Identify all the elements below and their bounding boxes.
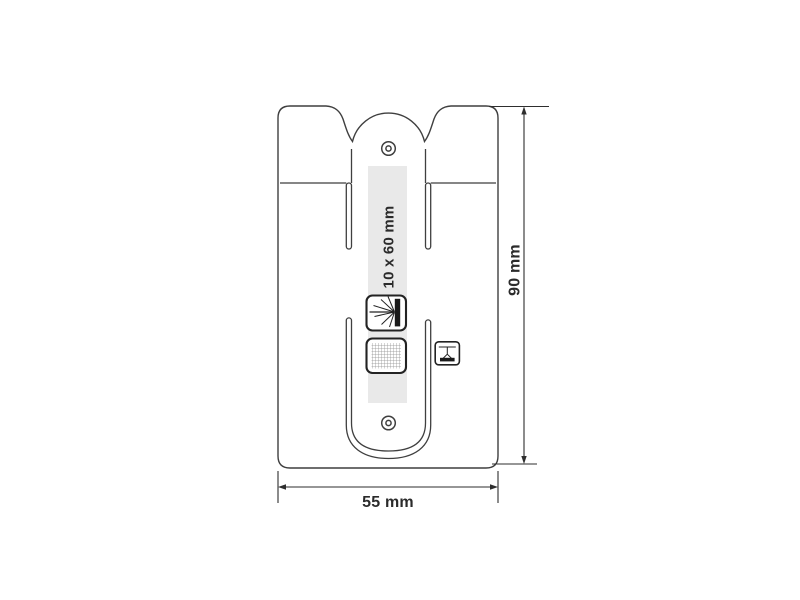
width-arrow-right	[490, 484, 498, 489]
height-arrow-top	[521, 107, 526, 115]
height-arrow-bottom	[521, 456, 526, 464]
laser-plate	[395, 299, 400, 327]
print-area-label: 10 x 60 mm	[381, 206, 398, 289]
right-upper-slit	[426, 183, 431, 249]
width-dimension-label: 55 mm	[362, 494, 414, 511]
pad-print-base	[440, 358, 455, 362]
screen-print-mesh-icon	[367, 339, 407, 374]
mesh-grid	[372, 343, 402, 369]
left-upper-slit	[346, 183, 351, 249]
height-dimension-label: 90 mm	[507, 244, 524, 296]
diagram-canvas: 55 mm 90 mm 10 x 60 mm	[0, 0, 800, 600]
pad-print-icon	[435, 342, 459, 365]
laser-engraving-icon	[367, 296, 407, 331]
width-arrow-left	[278, 484, 286, 489]
dimension-drawing: 55 mm 90 mm 10 x 60 mm	[0, 0, 800, 600]
